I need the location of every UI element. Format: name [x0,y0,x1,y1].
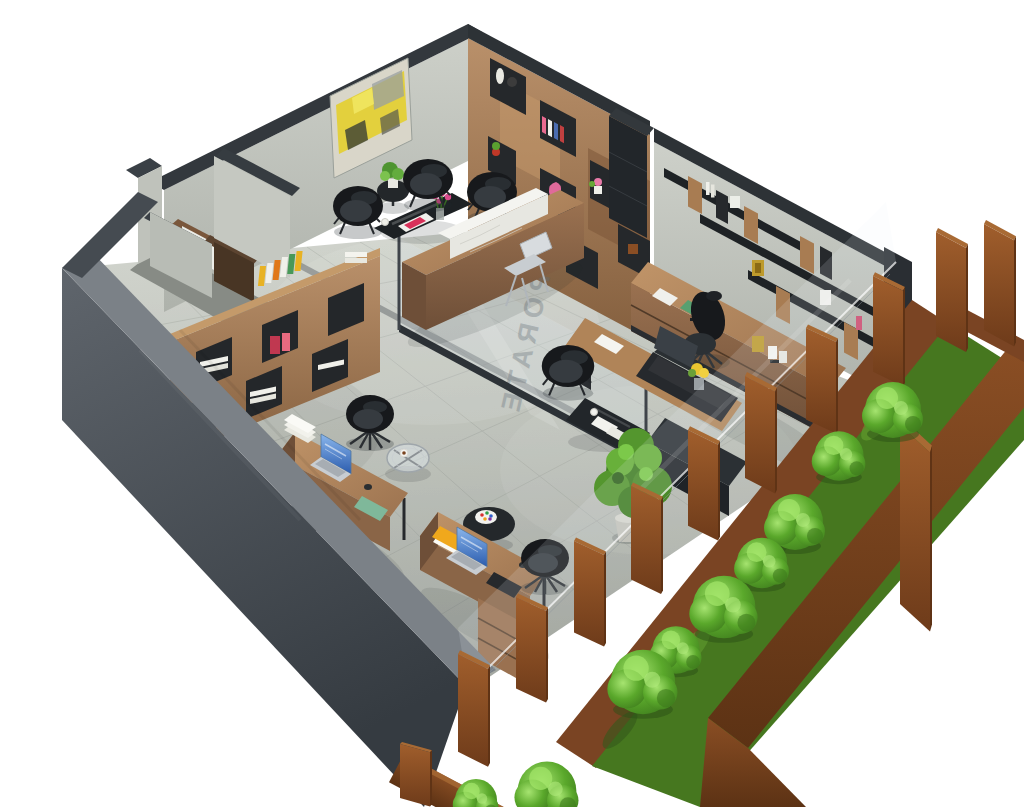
corten-fin-8 [458,650,490,767]
swivel-chair-1 [346,395,394,451]
round-glass-table [385,444,431,482]
office-3d-render: CORPORATE [0,0,1024,807]
lounge-chair-1 [333,186,383,239]
corten-fin-2 [806,324,838,433]
corten-fin-1 [873,272,905,386]
corten-fin-outer-3 [900,418,932,631]
corten-fin-3 [745,372,777,494]
divider-face [609,116,647,238]
lounge-chair-2 [403,159,453,212]
shrub-8 [514,762,578,807]
corten-fin-outer-1 [936,228,968,352]
corten-fin-7 [516,593,548,702]
corten-fin-9 [400,742,432,806]
mouse-1 [364,484,372,490]
corten-fin-outer-2 [984,220,1016,346]
shrub-9 [453,779,499,807]
guest-chair [542,345,595,401]
espresso-cup [382,219,389,226]
corten-fin-5 [631,482,663,594]
corten-fin-4 [688,426,720,540]
office-render-stage: CORPORATE [0,0,1024,807]
corten-fin-6 [574,537,606,646]
